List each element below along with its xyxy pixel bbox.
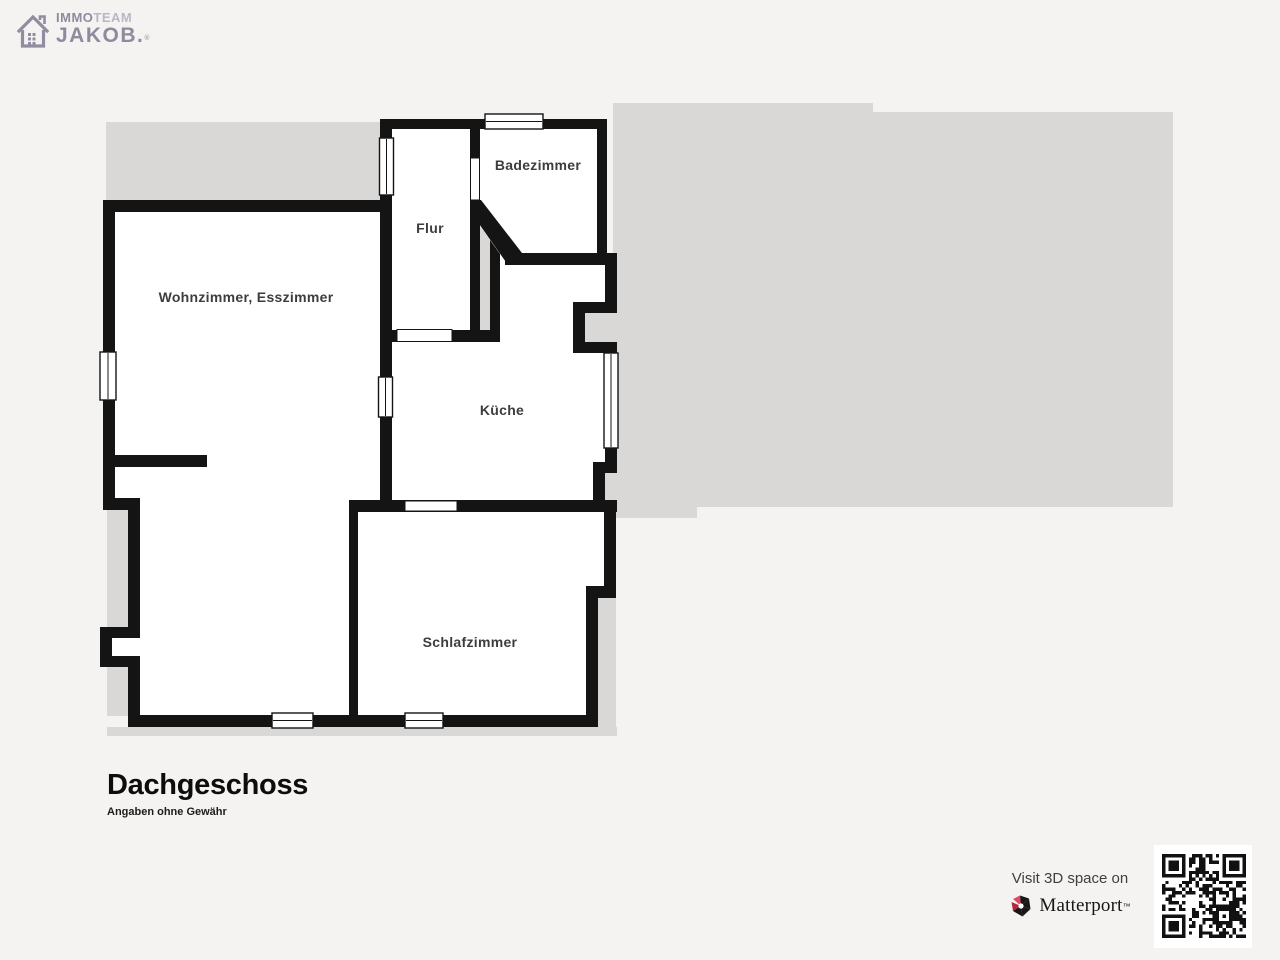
wall-segment — [103, 200, 392, 212]
wall-segment — [605, 448, 617, 462]
matterport-promo: Visit 3D space on Matterport™ — [1000, 870, 1140, 918]
wall-segment — [573, 313, 585, 342]
door-opening — [405, 501, 457, 511]
logo-immo: IMMO — [56, 10, 93, 25]
disclaimer-text: Angaben ohne Gewähr — [107, 806, 308, 818]
floor-title-block: Dachgeschoss Angaben ohne Gewähr — [107, 769, 308, 818]
door-opening — [471, 158, 480, 200]
matterport-wordmark: Matterport — [1039, 895, 1122, 917]
trademark-mark: ™ — [1123, 902, 1131, 911]
wall-segment — [349, 500, 617, 512]
wall-segment — [593, 462, 617, 473]
wall-segment — [586, 598, 598, 717]
matterport-brand-row: Matterport™ — [1000, 894, 1140, 918]
wall-segment — [605, 265, 617, 302]
wall-segment — [103, 498, 140, 510]
visit-3d-text: Visit 3D space on — [1000, 870, 1140, 887]
outside-area — [873, 112, 1173, 507]
wall-segment — [490, 240, 500, 342]
room-label-kueche: Küche — [480, 402, 524, 418]
outside-area — [480, 226, 490, 330]
outside-area — [106, 122, 383, 201]
logo-team: TEAM — [93, 10, 132, 25]
wall-segment — [573, 342, 617, 353]
room-label-badezimmer: Badezimmer — [495, 157, 582, 173]
wall-segment — [100, 656, 140, 667]
niche-opening — [112, 638, 140, 656]
floor-title: Dachgeschoss — [107, 769, 308, 802]
wall-segment — [586, 586, 616, 598]
wall-segment — [128, 510, 140, 717]
wall-segment — [597, 119, 607, 265]
wall-segment — [593, 473, 605, 502]
outside-area — [613, 103, 873, 507]
page: Wohnzimmer, Esszimmer Flur Badezimmer Kü… — [0, 0, 1280, 960]
outside-area — [107, 727, 617, 736]
room-fill — [349, 500, 616, 727]
qr-code-pattern — [1162, 854, 1246, 938]
outside-area — [107, 666, 128, 716]
outside-area — [598, 598, 616, 727]
room-label-schlafzimmer: Schlafzimmer — [423, 634, 518, 650]
logo-line2: JAKOB.® — [56, 25, 150, 46]
wall-segment — [128, 715, 598, 727]
wall-segment — [470, 119, 480, 342]
registered-mark: ® — [144, 35, 149, 42]
outside-area — [107, 510, 128, 628]
wall-segment — [573, 302, 617, 313]
logo-line1: IMMOTEAM — [56, 11, 150, 24]
outside-area — [605, 473, 617, 502]
company-logo: IMMOTEAM JAKOB.® — [16, 11, 150, 51]
door-opening — [397, 330, 452, 342]
qr-code — [1154, 845, 1252, 948]
outside-area — [585, 313, 617, 342]
wall-segment — [110, 455, 207, 467]
logo-jakob: JAKOB. — [56, 24, 144, 47]
outside-area — [613, 507, 697, 518]
matterport-icon — [1009, 894, 1033, 918]
logo-text: IMMOTEAM JAKOB.® — [56, 11, 150, 46]
house-icon — [16, 11, 54, 51]
room-label-wohnzimmer: Wohnzimmer, Esszimmer — [159, 289, 334, 305]
wall-segment — [604, 512, 616, 586]
house-window-dots — [28, 33, 36, 45]
room-label-flur: Flur — [416, 220, 444, 236]
wall-segment — [349, 500, 358, 727]
